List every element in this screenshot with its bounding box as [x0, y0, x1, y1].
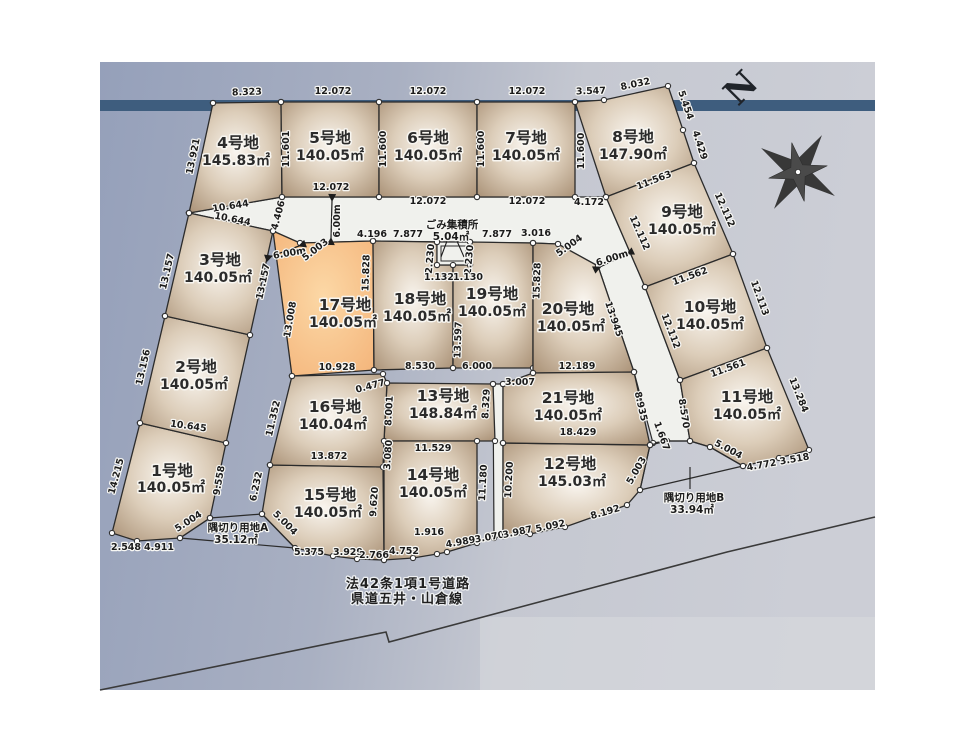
dim-label: 10.928	[319, 362, 356, 373]
vertex-dot	[450, 262, 455, 267]
lot-21-size: 140.05㎡	[534, 407, 602, 424]
lot-16-size: 140.04㎡	[299, 416, 367, 433]
lot-9-size: 140.05㎡	[648, 221, 716, 238]
dim-label: 3.080	[382, 439, 395, 470]
lot-6-name: 6号地	[407, 128, 449, 147]
dim-label: 15.828	[360, 254, 372, 291]
dim-label: 7.877	[393, 229, 423, 240]
trash-area-label: ごみ集積所	[426, 218, 479, 231]
dim-label: 3.547	[576, 85, 606, 97]
lot-5-size: 140.05㎡	[296, 147, 364, 164]
dim-label: 8.329	[480, 389, 493, 420]
lot-17-name: 17号地	[319, 295, 372, 314]
dim-label: 11.600	[476, 130, 487, 167]
dim-label: 4.172	[574, 197, 604, 208]
corner-cut-a-size: 35.12㎡	[214, 533, 258, 546]
corner-cut-b-size: 33.94㎡	[670, 503, 714, 516]
road-name-line2: 県道五井・山倉線	[351, 591, 463, 607]
corner-cut-b-label: 隅切り用地B	[664, 491, 725, 504]
dim-label: 6.000	[462, 361, 492, 372]
lot-12-size: 145.03㎡	[538, 473, 606, 490]
lot-6-size: 140.05㎡	[394, 147, 462, 164]
lot-20-name: 20号地	[542, 299, 595, 318]
dim-label: 1.130	[453, 272, 483, 283]
lot-16-name: 16号地	[309, 397, 362, 416]
dim-label: 3.007	[505, 377, 535, 388]
lot-20-size: 140.05㎡	[537, 318, 605, 335]
dim-label: 4.752	[389, 546, 419, 557]
lot-8-name: 8号地	[612, 127, 654, 146]
dim-label: 12.189	[559, 361, 596, 372]
dim-label: 4.196	[357, 229, 387, 240]
plot-map: N 1号地 140.05㎡ 2号地 140.05㎡ 3号地 140.05㎡ 4号…	[0, 0, 970, 728]
dim-label: 5.375	[294, 547, 324, 558]
dim-label: 12.072	[410, 86, 447, 97]
dim-label: 13.597	[452, 321, 464, 358]
dim-label: 12.072	[410, 196, 447, 207]
dim-label: 12.072	[313, 182, 350, 193]
lot-4-name: 4号地	[217, 133, 259, 152]
dim-label: 11.600	[576, 132, 587, 169]
road-strip	[493, 384, 503, 538]
dim-label: 15.828	[531, 262, 543, 299]
lot-5-name: 5号地	[309, 128, 351, 147]
lot-19-size: 140.05㎡	[458, 303, 526, 320]
dim-label: 11.600	[378, 130, 389, 167]
lot-2-name: 2号地	[175, 357, 217, 376]
dim-label: 12.072	[509, 86, 546, 97]
lot-18-size: 140.05㎡	[383, 308, 451, 325]
dim-label: 1.916	[414, 527, 444, 538]
lot-10-name: 10号地	[684, 297, 737, 316]
scan-light-patch	[480, 617, 875, 690]
plot-map-page: N 1号地 140.05㎡ 2号地 140.05㎡ 3号地 140.05㎡ 4号…	[0, 0, 970, 728]
lot-13-name: 13号地	[417, 386, 470, 405]
corner-cut-a-label: 隅切り用地A	[208, 521, 269, 534]
dim-label: 11.601	[281, 131, 292, 168]
lot-15-size: 140.05㎡	[294, 504, 362, 521]
lot-9-name: 9号地	[661, 202, 703, 221]
lot-4-size: 145.83㎡	[202, 152, 270, 169]
lot-14-size: 140.05㎡	[399, 484, 467, 501]
lot-13-size: 148.84㎡	[409, 405, 477, 422]
lot-1-name: 1号地	[151, 461, 193, 480]
trash-area-size: 5.04㎡	[433, 230, 470, 243]
lot-15-name: 15号地	[304, 485, 357, 504]
lot-11-name: 11号地	[721, 387, 774, 406]
dim-label: 7.877	[482, 229, 512, 240]
dim-label: 11.180	[477, 464, 490, 502]
dim-label: 3.016	[521, 228, 551, 239]
dim-label: 8.323	[232, 86, 262, 98]
dim-label: 18.429	[560, 427, 597, 438]
lot-7-size: 140.05㎡	[492, 147, 560, 164]
lot-11-size: 140.05㎡	[713, 406, 781, 423]
dim-label: 2.766	[359, 550, 389, 561]
dim-label: 9.620	[368, 486, 381, 517]
dim-label: 6.00m	[332, 204, 343, 237]
lot-1-size: 140.05㎡	[137, 479, 205, 496]
dim-label: 12.072	[509, 196, 546, 207]
dim-label: 13.872	[311, 451, 348, 462]
dim-label: 12.072	[315, 86, 352, 97]
dim-label: 8.001	[383, 396, 396, 427]
lot-12-name: 12号地	[544, 454, 597, 473]
lot-19-name: 19号地	[466, 284, 519, 303]
lot-17-size: 140.05㎡	[309, 314, 377, 331]
dim-label: 4.911	[144, 542, 174, 553]
road-name-line1: 法42条1項1号道路	[346, 576, 470, 592]
lot-3-size: 140.05㎡	[184, 269, 252, 286]
lot-7-name: 7号地	[505, 128, 547, 147]
lot-21-name: 21号地	[542, 388, 595, 407]
dim-label: 11.529	[415, 443, 452, 454]
lot-10-size: 140.05㎡	[676, 316, 744, 333]
lot-2-size: 140.05㎡	[160, 376, 228, 393]
lot-3-name: 3号地	[199, 250, 241, 269]
dim-label: 2.548	[111, 542, 141, 553]
lot-8-size: 147.90㎡	[599, 146, 667, 163]
dim-label: 1.132	[424, 272, 454, 283]
dim-label: 8.530	[405, 361, 435, 372]
lot-18-name: 18号地	[394, 289, 447, 308]
lot-14-name: 14号地	[407, 465, 460, 484]
dim-label: 10.200	[503, 461, 516, 499]
